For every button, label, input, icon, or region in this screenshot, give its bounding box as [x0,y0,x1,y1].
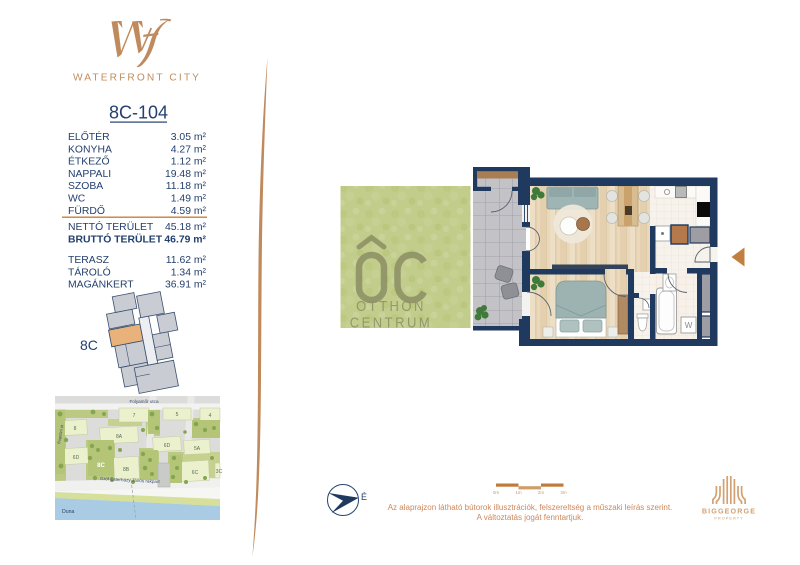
svg-text:WATERFRONT CITY: WATERFRONT CITY [73,73,201,84]
svg-text:11.18 m²: 11.18 m² [166,181,207,192]
svg-text:6D: 6D [164,443,171,449]
svg-text:Az alaprajzon látható bútorok: Az alaprajzon látható bútorok illusztrác… [388,503,673,512]
svg-text:8B: 8B [123,467,130,473]
svg-text:45.18 m²: 45.18 m² [165,222,207,233]
svg-text:8: 8 [74,426,77,432]
svg-text:ÉTKEZŐ: ÉTKEZŐ [68,154,110,168]
svg-text:8A: 8A [116,434,123,440]
svg-text:4.59 m²: 4.59 m² [171,206,207,217]
svg-text:3.05 m²: 3.05 m² [171,132,207,143]
svg-text:46.79 m²: 46.79 m² [164,235,206,246]
svg-text:FÜRDŐ: FÜRDŐ [68,203,105,217]
svg-text:NETTÓ TERÜLET: NETTÓ TERÜLET [68,220,154,233]
svg-text:A változtatás jogát fenntartju: A változtatás jogát fenntartjuk. [477,513,584,522]
svg-text:1.49 m²: 1.49 m² [171,194,207,205]
svg-text:1.12 m²: 1.12 m² [171,157,207,168]
svg-text:3C: 3C [216,469,223,475]
svg-text:4.27 m²: 4.27 m² [171,144,207,155]
svg-text:8C: 8C [80,337,98,353]
svg-text:Folyamőr utca: Folyamőr utca [129,399,159,404]
svg-text:CENTRUM: CENTRUM [350,315,432,331]
svg-text:4: 4 [209,413,212,419]
svg-text:BIGGEORGE: BIGGEORGE [702,507,756,516]
svg-text:NAPPALI: NAPPALI [68,169,111,180]
svg-text:PROPERTY: PROPERTY [714,516,743,521]
svg-text:É: É [361,492,367,502]
svg-text:TERASZ: TERASZ [68,255,110,266]
svg-text:6C: 6C [192,470,199,476]
svg-text:6D: 6D [73,455,80,461]
svg-text:WC: WC [68,194,86,205]
svg-text:BRUTTÓ TERÜLET: BRUTTÓ TERÜLET [68,233,163,246]
svg-text:2m: 2m [538,490,545,495]
svg-text:8C: 8C [97,463,105,469]
svg-text:5A: 5A [194,446,201,452]
svg-text:Duna: Duna [62,509,75,515]
svg-text:5: 5 [176,412,179,418]
svg-text:ELŐTÉR: ELŐTÉR [68,129,110,143]
svg-text:1.34 m²: 1.34 m² [171,267,207,278]
svg-text:36.91 m²: 36.91 m² [165,280,207,291]
svg-text:MAGÁNKERT: MAGÁNKERT [68,278,134,291]
svg-text:3m: 3m [560,490,567,495]
svg-text:SZOBA: SZOBA [68,181,103,192]
svg-text:1m: 1m [515,490,522,495]
svg-text:OTTHON: OTTHON [356,298,426,314]
svg-text:0m: 0m [493,490,500,495]
svg-text:KONYHA: KONYHA [68,144,112,155]
svg-text:19.48 m²: 19.48 m² [165,169,207,180]
svg-text:8C-104: 8C-104 [109,103,168,123]
svg-text:TÁROLÓ: TÁROLÓ [68,265,111,278]
svg-text:W: W [685,321,693,330]
svg-text:7: 7 [133,413,136,419]
svg-text:11.62 m²: 11.62 m² [166,255,207,266]
